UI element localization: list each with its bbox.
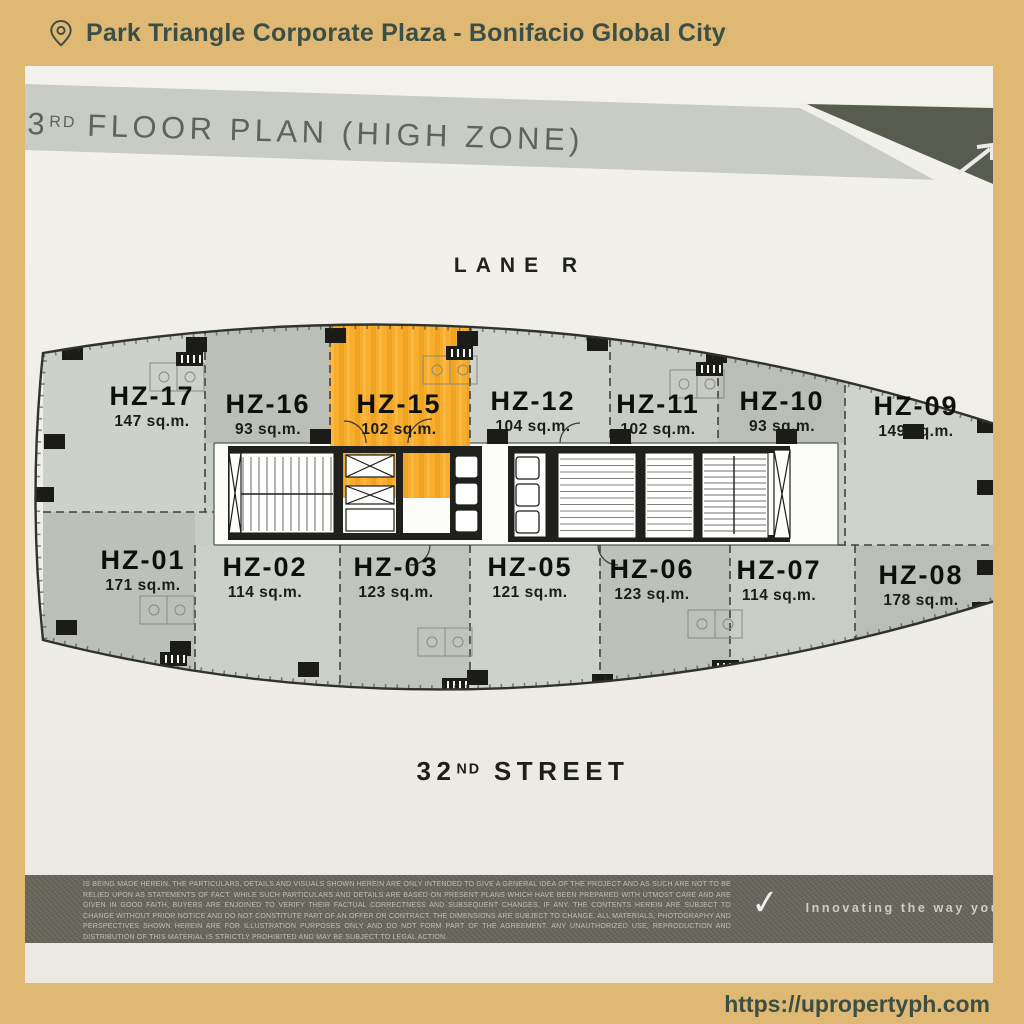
unit-label-hz-08: HZ-08 (878, 560, 963, 590)
app-header: Park Triangle Corporate Plaza - Bonifaci… (0, 0, 1024, 66)
unit-area-hz-17: 147 sq.m. (114, 413, 189, 430)
louvre-block (176, 352, 203, 366)
unit-area-hz-16: 93 sq.m. (235, 421, 301, 438)
column-marker (467, 670, 488, 685)
column-marker (977, 560, 993, 575)
unit-area-hz-12: 104 sq.m. (495, 418, 570, 435)
unit-label-hz-12: HZ-12 (490, 386, 575, 416)
column-marker (56, 620, 77, 635)
core-right (508, 446, 790, 542)
unit-area-hz-08: 178 sq.m. (883, 592, 958, 609)
unit-area-hz-09: 149 sq.m. (878, 423, 953, 440)
check-icon: ✓ (749, 882, 782, 925)
floor-number: 3 (27, 106, 50, 142)
disclaimer-text: IS BEING MADE HEREIN. THE PARTICULARS, D… (83, 880, 731, 943)
unit-area-hz-03: 123 sq.m. (358, 584, 433, 601)
column-marker (838, 362, 859, 377)
column-marker (186, 337, 207, 352)
unit-label-hz-02: HZ-02 (222, 552, 307, 582)
screenshot: Park Triangle Corporate Plaza - Bonifaci… (0, 0, 1024, 1024)
column-marker (902, 632, 923, 647)
column-marker (457, 331, 478, 346)
unit-label-hz-10: HZ-10 (739, 386, 824, 416)
disclaimer-bar: IS BEING MADE HEREIN. THE PARTICULARS, D… (25, 875, 993, 943)
tagline-text: Innovating the way you (806, 901, 993, 915)
lane-label: LANE R (410, 254, 630, 278)
unit-area-hz-15: 102 sq.m. (361, 421, 436, 438)
louvre-block (696, 362, 723, 376)
unit-label-hz-07: HZ-07 (736, 555, 821, 585)
unit-area-hz-11: 102 sq.m. (620, 421, 695, 438)
unit-area-hz-02: 114 sq.m. (228, 584, 302, 601)
column-marker (956, 392, 977, 407)
unit-label-hz-17: HZ-17 (109, 381, 194, 411)
page-title: Park Triangle Corporate Plaza - Bonifaci… (86, 19, 726, 48)
unit-label-hz-15: HZ-15 (356, 389, 441, 419)
unit-area-hz-07: 114 sq.m. (742, 587, 816, 604)
unit-label-hz-01: HZ-01 (100, 545, 185, 575)
louvre-block (446, 346, 473, 360)
column-marker (850, 639, 871, 654)
location-pin-icon (46, 18, 76, 48)
column-marker (44, 434, 65, 449)
unit-label-hz-05: HZ-05 (487, 552, 572, 582)
floor-plan-photo: HZ-17147 sq.m.HZ-1693 sq.m.HZ-15102 sq.m… (25, 66, 993, 983)
column-marker (977, 480, 993, 495)
unit-area-hz-10: 93 sq.m. (749, 418, 815, 435)
unit-label-hz-11: HZ-11 (616, 389, 700, 419)
column-marker (310, 429, 331, 444)
floor-plan-drawing: HZ-17147 sq.m.HZ-1693 sq.m.HZ-15102 sq.m… (25, 66, 993, 983)
unit-label-hz-06: HZ-06 (609, 554, 694, 584)
louvre-block (160, 652, 187, 666)
unit-label-hz-03: HZ-03 (353, 552, 438, 582)
column-marker (325, 328, 346, 343)
unit-area-hz-05: 121 sq.m. (492, 584, 567, 601)
unit-area-hz-01: 171 sq.m. (105, 577, 180, 594)
column-marker (298, 662, 319, 677)
website-url[interactable]: https://upropertyph.com (724, 991, 990, 1018)
unit-area-hz-06: 123 sq.m. (614, 586, 689, 603)
unit-label-hz-16: HZ-16 (225, 389, 310, 419)
unit-label-hz-09: HZ-09 (873, 391, 958, 421)
street-label: 32ND STREET (373, 756, 673, 787)
